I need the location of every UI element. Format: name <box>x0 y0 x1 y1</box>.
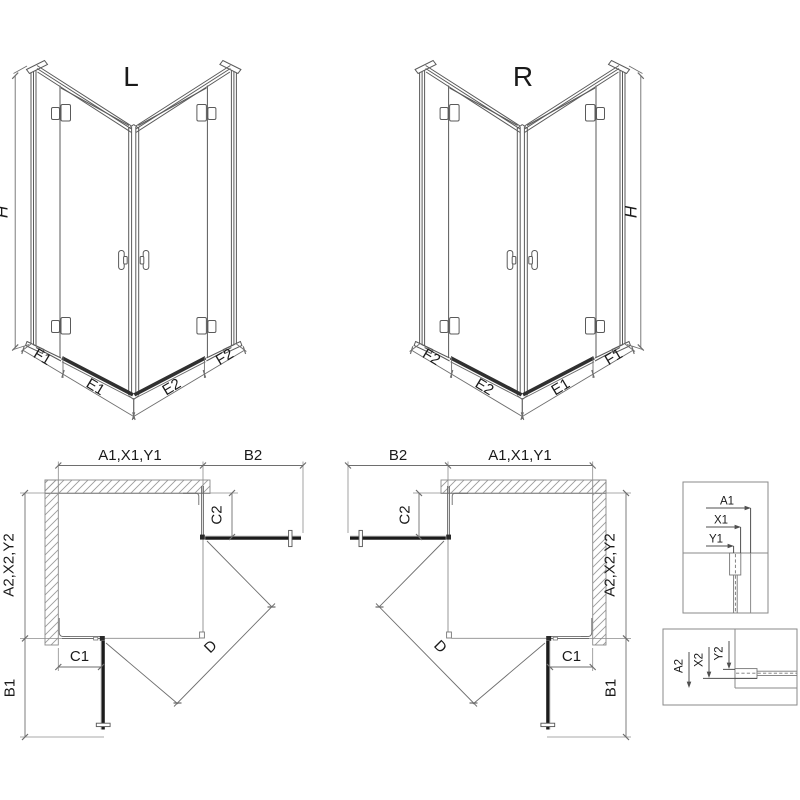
plan-left-depth-label: A2,X2,Y2 <box>1 533 18 596</box>
detail-wall-profile-box: A1 X1 Y1 <box>683 482 768 613</box>
plan-left-fixed-top-label: C2 <box>209 505 226 524</box>
iso-right-variant-label: R <box>513 61 533 92</box>
iso-left-variant-label: L <box>123 61 139 92</box>
plan-left-swing-front-label: B1 <box>2 679 19 697</box>
technical-drawing: L H F1 E1 E2 F2 R H F2 E2 E1 F1 A1,X1,Y1… <box>0 0 800 800</box>
detail-floor-dim2-label: X2 <box>694 653 706 667</box>
plan-left-swing-top-label: B2 <box>244 447 262 464</box>
plan-right-depth-label: A2,X2,Y2 <box>602 533 619 596</box>
plan-left-fixed-front-label: C1 <box>70 648 89 665</box>
detail-floor-dim3-label: Y2 <box>714 646 726 660</box>
iso-left-height-label: H <box>0 205 12 218</box>
wall-side <box>45 480 58 645</box>
drawing-canvas: L H F1 E1 E2 F2 R H F2 E2 E1 F1 A1,X1,Y1… <box>0 0 800 800</box>
detail-wall-dim1-label: A1 <box>720 496 734 508</box>
wall-top <box>45 480 210 494</box>
plan-right-width-label: A1,X1,Y1 <box>488 447 551 464</box>
plan-right-swing-top-label: B2 <box>389 447 407 464</box>
plan-left-width-label: A1,X1,Y1 <box>98 447 161 464</box>
detail-floor-profile-box: A2 X2 Y2 <box>663 629 797 705</box>
plan-right-fixed-front-label: C1 <box>562 648 581 665</box>
plan-right-swing-front-label: B1 <box>603 679 620 697</box>
iso-right-height-label: H <box>622 205 641 218</box>
detail-wall-dim2-label: X1 <box>714 515 728 527</box>
plan-right-fixed-top-label: C2 <box>397 505 414 524</box>
detail-wall-dim3-label: Y1 <box>709 534 723 546</box>
detail-floor-dim1-label: A2 <box>674 659 686 673</box>
wall-top <box>441 480 606 494</box>
